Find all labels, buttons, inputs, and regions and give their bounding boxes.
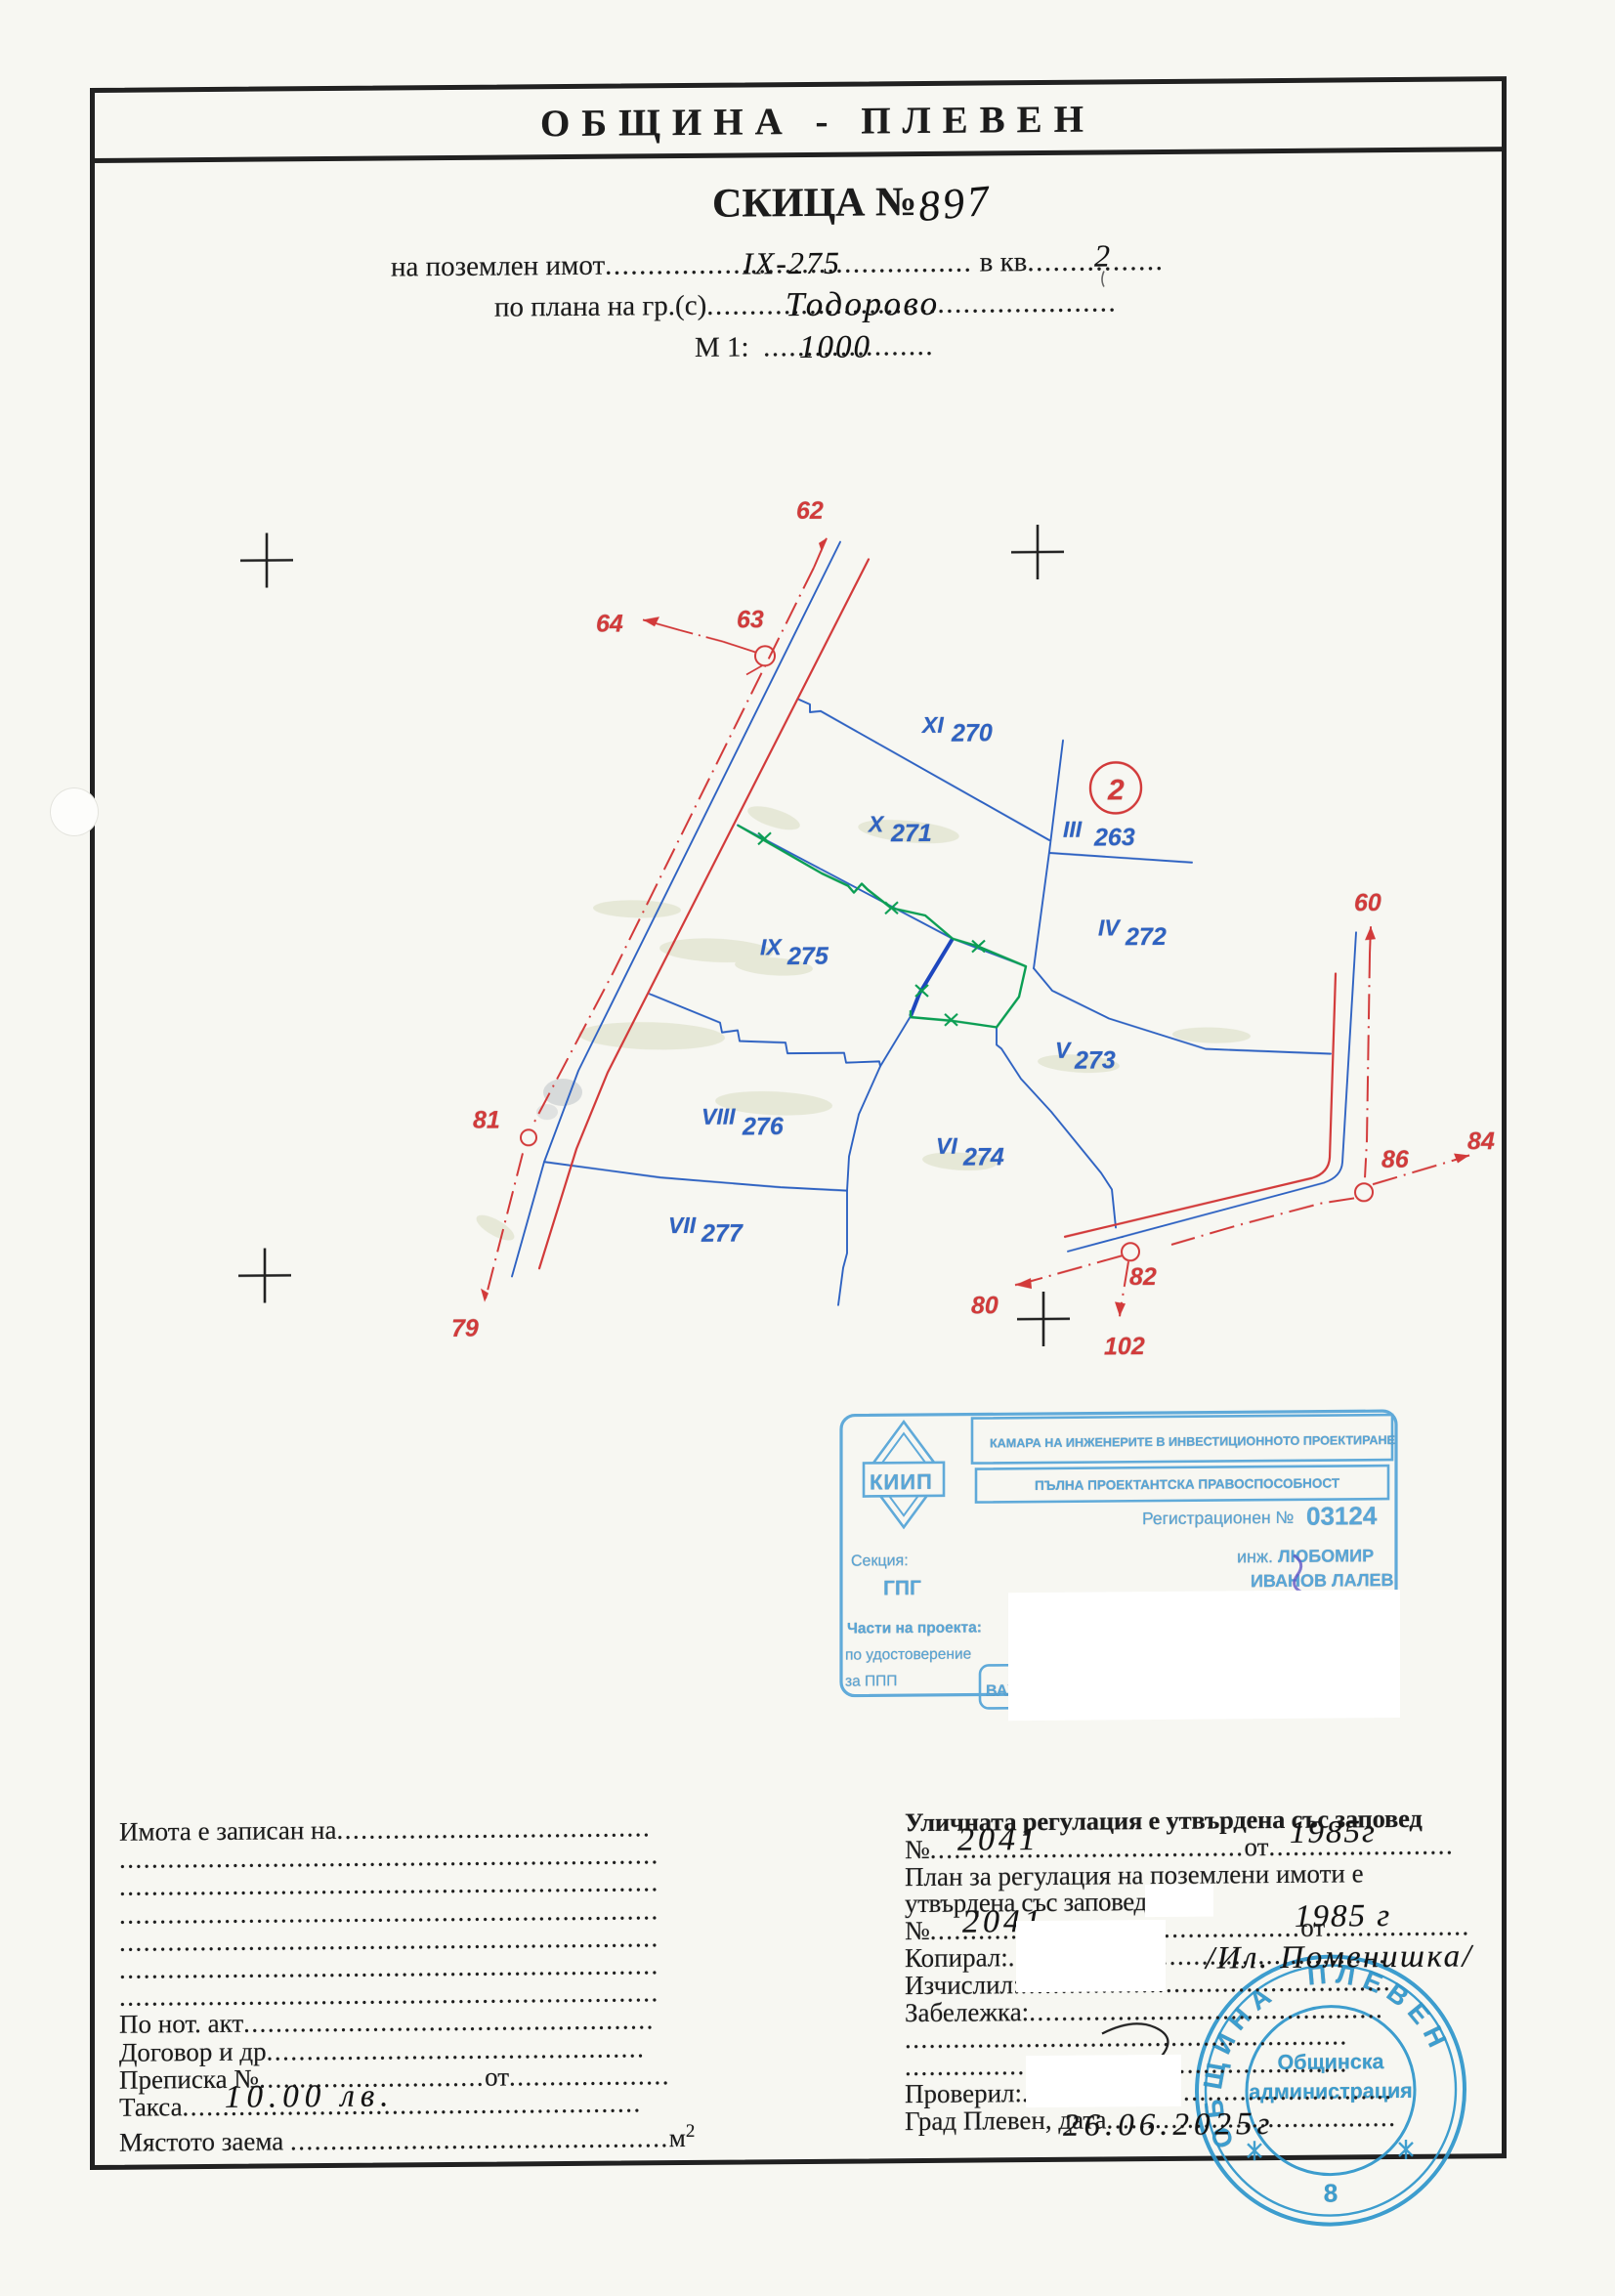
svg-text:ГПГ: ГПГ [883, 1577, 921, 1599]
svg-text:Части на проекта:: Части на проекта: [847, 1620, 982, 1637]
svg-text:276: 276 [742, 1113, 785, 1140]
svg-text:03124: 03124 [1306, 1501, 1378, 1531]
svg-text:КАМАРА НА ИНЖЕНЕРИТЕ В ИНВЕСТИ: КАМАРА НА ИНЖЕНЕРИТЕ В ИНВЕСТИЦИОННОТО П… [990, 1433, 1395, 1450]
svg-text:IV: IV [1098, 914, 1121, 940]
svg-text:63: 63 [737, 606, 764, 633]
svg-text:79: 79 [451, 1315, 479, 1342]
svg-text:272: 272 [1125, 923, 1167, 951]
svg-text:Секция:: Секция: [851, 1552, 909, 1569]
svg-text:81: 81 [473, 1107, 500, 1134]
svg-text:Регистрационен №: Регистрационен № [1142, 1508, 1294, 1528]
svg-text:62: 62 [796, 497, 824, 525]
svg-text:VI: VI [936, 1133, 957, 1159]
svg-text:270: 270 [951, 719, 993, 746]
svg-text:IX: IX [760, 934, 783, 959]
svg-text:VII: VII [668, 1212, 697, 1238]
svg-text:102: 102 [1104, 1333, 1145, 1360]
svg-text:III: III [1063, 817, 1083, 842]
svg-text:82: 82 [1129, 1263, 1157, 1291]
svg-text:275: 275 [786, 943, 829, 970]
svg-text:VIII: VIII [701, 1104, 736, 1129]
svg-text:271: 271 [890, 820, 932, 847]
svg-text:за ППП: за ППП [845, 1673, 897, 1689]
svg-text:инж. ЛЮБОМИР: инж. ЛЮБОМИР [1237, 1546, 1374, 1566]
svg-text:64: 64 [596, 611, 623, 638]
svg-text:84: 84 [1467, 1127, 1495, 1155]
svg-text:XI: XI [920, 712, 944, 738]
svg-text:86: 86 [1381, 1146, 1410, 1173]
svg-text:60: 60 [1354, 889, 1381, 916]
svg-text:8: 8 [1324, 2179, 1338, 2208]
svg-text:КИИП: КИИП [870, 1469, 933, 1495]
svg-text:277: 277 [701, 1220, 744, 1248]
svg-text:2: 2 [1107, 774, 1125, 806]
svg-text:X: X [867, 811, 885, 836]
svg-text:80: 80 [971, 1292, 999, 1319]
svg-text:V: V [1055, 1038, 1072, 1063]
svg-text:ПЪЛНА ПРОЕКТАНТСКА ПРАВОСПОСОБ: ПЪЛНА ПРОЕКТАНТСКА ПРАВОСПОСОБНОСТ [1035, 1476, 1340, 1494]
svg-text:по удостоверение: по удостоверение [845, 1646, 971, 1664]
svg-text:274: 274 [962, 1143, 1004, 1170]
svg-text:273: 273 [1074, 1046, 1116, 1074]
svg-text:ИВАНОВ ЛАЛЕВ: ИВАНОВ ЛАЛЕВ [1251, 1570, 1394, 1591]
svg-text:263: 263 [1093, 824, 1135, 851]
